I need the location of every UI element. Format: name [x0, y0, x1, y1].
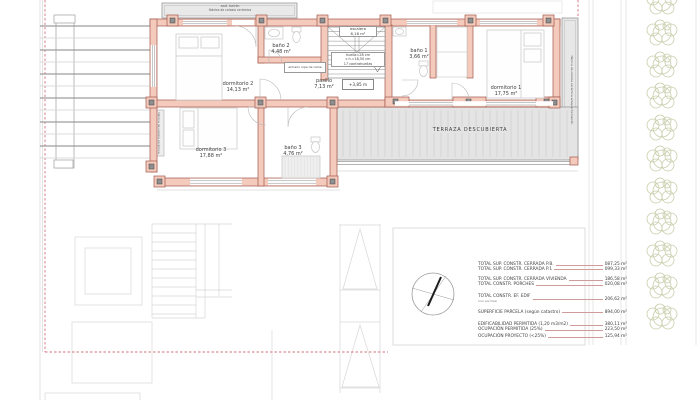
terrace — [337, 107, 578, 165]
row-label: TOTAL CONSTR. PORCHES — [478, 283, 534, 288]
tree-icon — [647, 52, 677, 77]
area-table: TOTAL SUP. CONSTR. CERRADA P.B. 087,25 m… — [478, 263, 627, 340]
row-label: TOTAL CONSTR. EF. EDIF (con porches) — [478, 295, 531, 304]
room-label-dormitorio-1: dormitorio 117,75 m² — [476, 86, 536, 98]
side-note-left: fábrica de celosía cerámica — [157, 112, 161, 154]
row-value: 099,33 m² — [605, 268, 627, 273]
table-row: TOTAL SUP. CONSTR. CERRADA P.1 099,33 m² — [478, 268, 627, 273]
stair-specs-note: huella=28 cm c.h.=18,50 cm 17 contrahuel… — [331, 52, 385, 67]
table-row: OCUPACIÓN PROYECTO (<25%) 125,94 m² — [478, 335, 627, 340]
side-note-right: fábrica de celosía cerámica antepecho ba… — [570, 50, 574, 130]
tree-icon — [647, 178, 677, 203]
leader-line — [554, 269, 603, 270]
tree-icon — [647, 273, 677, 298]
row-label: OCUPACIÓN PROYECTO (<25%) — [478, 335, 546, 340]
row-label: OCUPACIÓN PERMITIDA (25%) — [478, 328, 543, 333]
row-label: TOTAL SUP. CONSTR. CERRADA P.1 — [478, 268, 552, 273]
tree-icon — [647, 241, 677, 266]
leader-line — [533, 299, 603, 300]
room-label-bano-2: baño 24,48 m² — [261, 44, 301, 56]
tree-icon — [647, 304, 677, 329]
table-row: SUPERFICIE PARCELA (según catastro) 894,… — [478, 311, 627, 316]
tree-icon — [647, 115, 677, 140]
row-value: 894,00 m² — [605, 311, 627, 316]
leader-line — [562, 312, 603, 313]
leader-line — [536, 285, 603, 286]
tree-icon — [647, 83, 677, 108]
tree-icon — [647, 0, 677, 14]
leader-line — [569, 280, 603, 281]
row-value: 206,62 m² — [605, 298, 627, 303]
room-label-dormitorio-2: dormitorio 214,13 m² — [203, 82, 273, 94]
row-label: SUPERFICIE PARCELA (según catastro) — [478, 311, 560, 316]
floor-plan-canvas: dormitorio 214,13 m² baño 24,48 m² escal… — [0, 0, 700, 400]
room-label-bano-3: baño 34,76 m² — [273, 146, 313, 158]
leader-line — [548, 337, 603, 338]
row-value: 223,50 m² — [605, 328, 627, 333]
tree-icon — [647, 146, 677, 171]
pergola — [40, 15, 151, 168]
room-label-pasillo: pasillo7,13 m² — [306, 79, 342, 91]
level-marker: +3,85 m — [342, 79, 374, 90]
compass-icon — [412, 273, 454, 315]
tree-row — [647, 0, 677, 329]
closet-label: armario ropa de cama — [284, 62, 326, 73]
tree-icon — [647, 209, 677, 234]
tree-icon — [647, 20, 677, 45]
room-label-dormitorio-3: dormitorio 317,88 m² — [176, 148, 246, 160]
balcony-note: azot. balcón fábrica de celosía cerámica — [175, 5, 285, 13]
row-value: 125,94 m² — [605, 335, 627, 340]
table-row: TOTAL CONSTR. PORCHES 020,08 m² — [478, 283, 627, 288]
row-sublabel: (con porches) — [478, 299, 497, 303]
table-row: TOTAL CONSTR. EF. EDIF (con porches) 206… — [478, 295, 627, 304]
leader-line — [570, 325, 603, 326]
room-label-bano-1: baño 13,66 m² — [399, 49, 439, 61]
terrace-label: TERRAZA DESCUBIERTA — [420, 127, 520, 133]
row-value: 020,08 m² — [605, 283, 627, 288]
leader-line — [545, 330, 603, 331]
leader-line — [556, 265, 603, 266]
table-row: OCUPACIÓN PERMITIDA (25%) 223,50 m² — [478, 328, 627, 333]
room-label-escalera: escalera6,16 m² — [339, 26, 377, 37]
